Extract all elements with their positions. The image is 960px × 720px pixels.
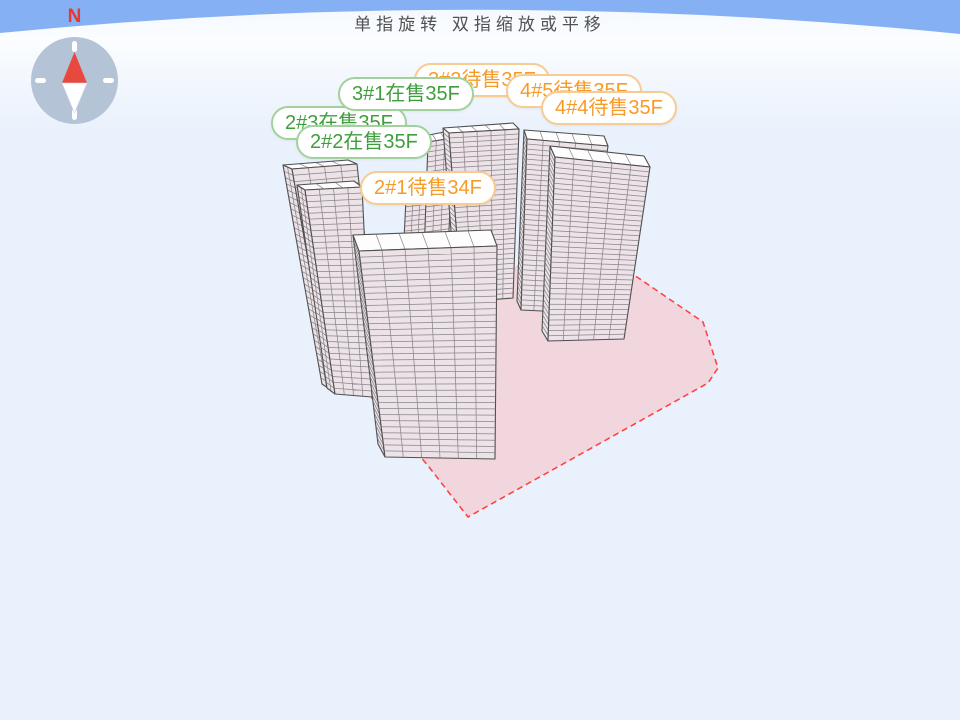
building-label-3-1[interactable]: 3#1在售35F [338, 77, 474, 111]
compass[interactable]: N [31, 0, 118, 130]
compass-dial [31, 37, 118, 124]
building-label-2-1[interactable]: 2#1待售34F [360, 171, 496, 205]
compass-needle-icon [31, 37, 118, 124]
building-label-2-2[interactable]: 2#2在售35F [296, 125, 432, 159]
gesture-hint-text: 单指旋转 双指缩放或平移 [354, 10, 606, 35]
3d-sales-map-viewport[interactable]: 单指旋转 双指缩放或平移 N 3#2待售35F3#1在售35F4#5待售35F4… [0, 0, 960, 720]
building-label-4-4[interactable]: 4#4待售35F [541, 91, 677, 125]
3d-scene-canvas[interactable] [0, 0, 960, 720]
compass-north-label: N [31, 6, 118, 28]
